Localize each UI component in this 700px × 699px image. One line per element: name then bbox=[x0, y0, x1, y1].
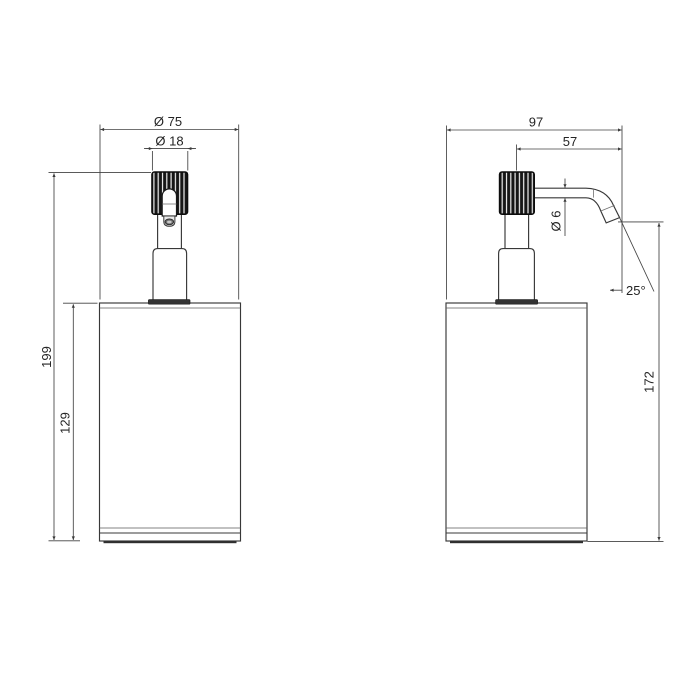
side-body bbox=[446, 303, 587, 541]
side-pump-collar bbox=[499, 249, 535, 301]
side-total-depth-label: 97 bbox=[529, 115, 543, 130]
front-body-height-label: 129 bbox=[58, 412, 73, 434]
side-spout-outlet-height-label: 172 bbox=[642, 371, 657, 393]
side-spout-diameter-label: Ø 6 bbox=[549, 211, 564, 232]
side-spout-reach-label: 57 bbox=[563, 134, 577, 149]
side-pump-knob bbox=[500, 172, 535, 214]
front-pump-flange bbox=[148, 300, 190, 305]
front-pump-outlet-hole bbox=[167, 221, 172, 224]
front-pump-capsule bbox=[162, 189, 176, 216]
front-pump-collar bbox=[153, 249, 187, 301]
front-total-height-label: 199 bbox=[39, 346, 54, 368]
side-pump-neck bbox=[505, 214, 529, 249]
technical-drawing: Ø 75 Ø 18 199 129 bbox=[0, 0, 700, 699]
side-spout-angle-label: 25° bbox=[626, 283, 646, 298]
drawing-canvas: Ø 75 Ø 18 199 129 bbox=[0, 0, 700, 699]
front-base-shadow bbox=[104, 541, 237, 543]
front-body-diameter-label: Ø 75 bbox=[154, 114, 182, 129]
front-body bbox=[100, 303, 241, 541]
side-base-shadow bbox=[450, 541, 583, 543]
front-pump-diameter-label: Ø 18 bbox=[155, 134, 183, 149]
side-pump-flange bbox=[496, 300, 538, 305]
